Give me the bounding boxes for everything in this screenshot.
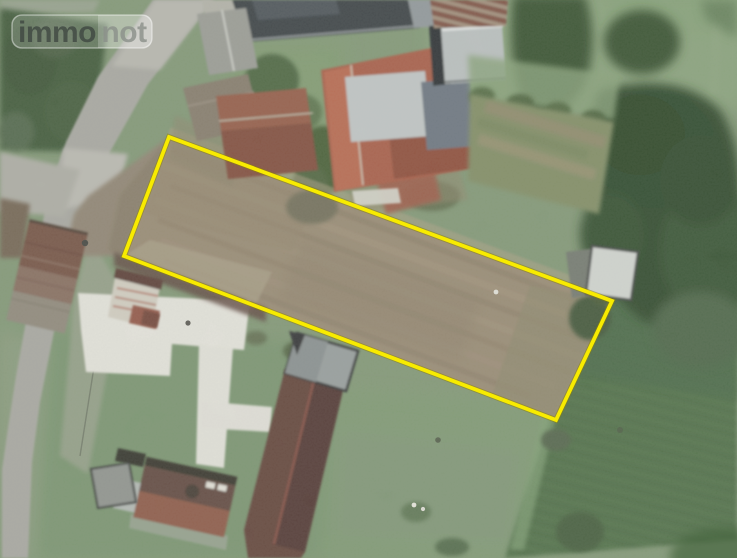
svg-text:not: not [101,16,147,49]
svg-text:immo: immo [18,16,96,49]
